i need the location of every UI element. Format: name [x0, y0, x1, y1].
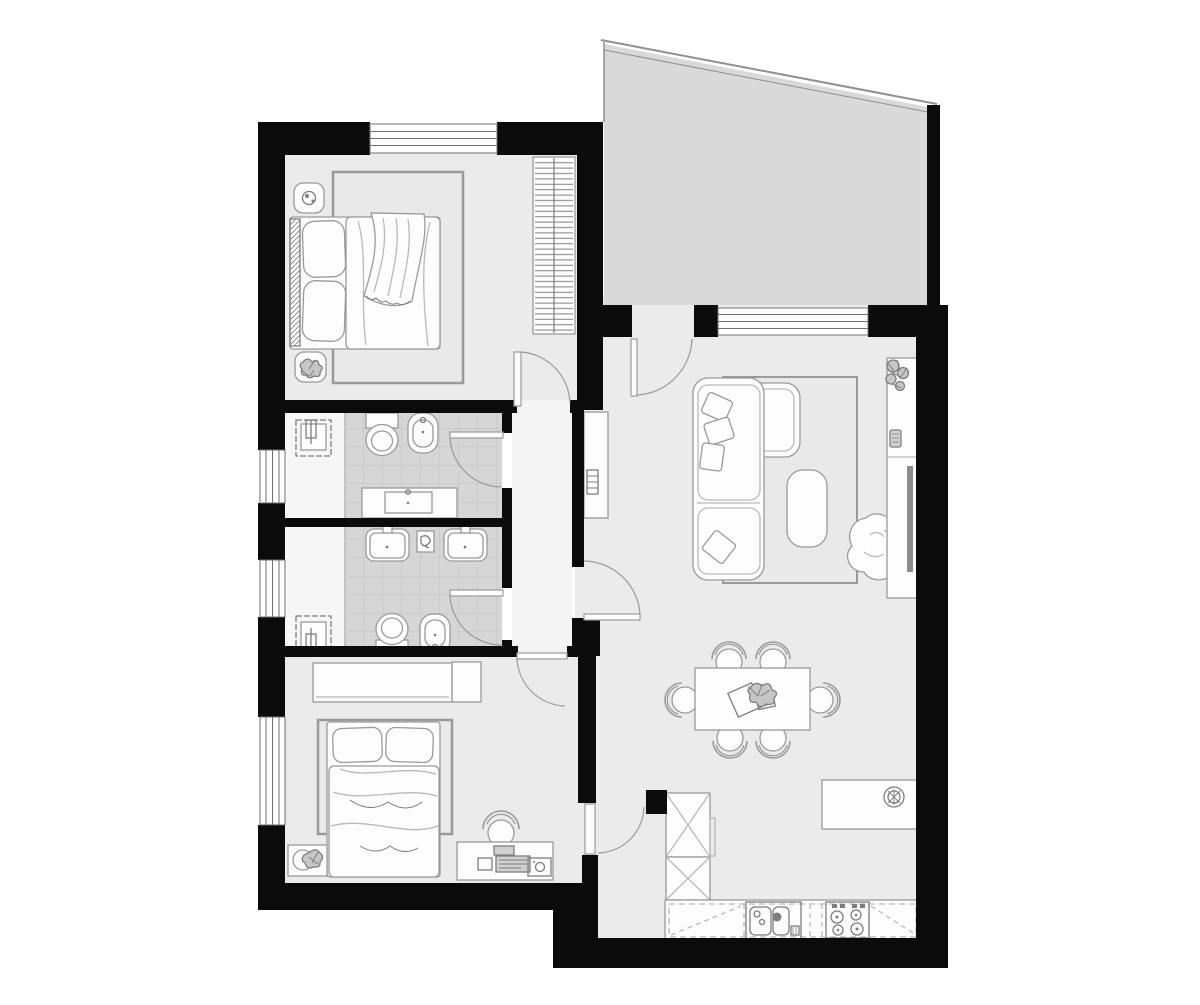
bedroom1-window [370, 124, 497, 153]
lamp-icon [305, 194, 309, 198]
speaker-icon [890, 430, 901, 447]
kitchen-island [822, 780, 918, 829]
bed1-headboard [290, 219, 300, 346]
wall [258, 646, 518, 657]
wall [578, 656, 596, 803]
bed2-duvet [329, 766, 439, 877]
wall [572, 410, 584, 567]
bedroom1-bed [290, 213, 440, 349]
bathroom2-shelf-box [417, 531, 434, 552]
balcony-deck [604, 44, 933, 305]
wall [916, 305, 948, 968]
bedroom2-desk [457, 842, 553, 880]
wall [582, 855, 598, 888]
wall [258, 617, 285, 717]
wall [927, 105, 940, 305]
bedroom2-window [260, 717, 285, 825]
tap-icon [383, 526, 392, 533]
living-tv-sideboard [887, 358, 918, 598]
wall [553, 883, 598, 968]
wall [258, 503, 285, 560]
wall [567, 646, 584, 657]
wall [570, 400, 584, 413]
wall [577, 122, 603, 410]
bedroom1-nightstand-top [294, 183, 324, 213]
bathroom2-window [260, 560, 285, 617]
wall [603, 305, 632, 337]
bedroom2-plant-basket [288, 845, 327, 876]
floor-plan-page [0, 0, 1200, 1005]
wall [553, 938, 948, 968]
bed2-pillow-left [332, 727, 382, 763]
bathroom1-window [260, 450, 285, 503]
bedroom1-nightstand-bottom [295, 352, 326, 382]
tap-icon [461, 526, 470, 533]
living-ottoman [787, 470, 827, 547]
bathroom2-washbasin-right [444, 526, 487, 561]
floor-plan-canvas [0, 0, 1200, 1005]
dining-table [695, 668, 810, 730]
bed1-pillow-bottom [302, 280, 346, 341]
wall [646, 790, 667, 814]
kitchen-tall-cabinets [666, 793, 715, 900]
wall [502, 488, 512, 588]
hallway-floor [512, 400, 572, 658]
monitor-icon [494, 846, 514, 855]
bed2-pillow-right [385, 727, 433, 763]
wall [283, 518, 512, 527]
balcony [601, 40, 937, 305]
bathroom2-washbasin-left [366, 526, 409, 561]
wall [502, 640, 512, 657]
bathroom1-water-heater [296, 420, 331, 456]
tv-icon [907, 466, 913, 572]
wall [258, 400, 517, 413]
bedroom2-bed [327, 722, 440, 877]
living-console [584, 412, 608, 518]
bed1-pillow-top [302, 220, 346, 277]
bathroom1-bidet [408, 413, 438, 453]
bedroom1-radiator [533, 157, 575, 334]
wall [502, 410, 512, 433]
living-window [718, 308, 868, 335]
faucet-icon [773, 913, 782, 922]
bathroom1-vanity [362, 488, 457, 518]
wall [258, 883, 553, 910]
wall [694, 305, 718, 337]
sofa-pillow [699, 443, 724, 472]
bathroom1-toilet [366, 413, 398, 456]
bedroom2-wardrobe [313, 662, 481, 702]
